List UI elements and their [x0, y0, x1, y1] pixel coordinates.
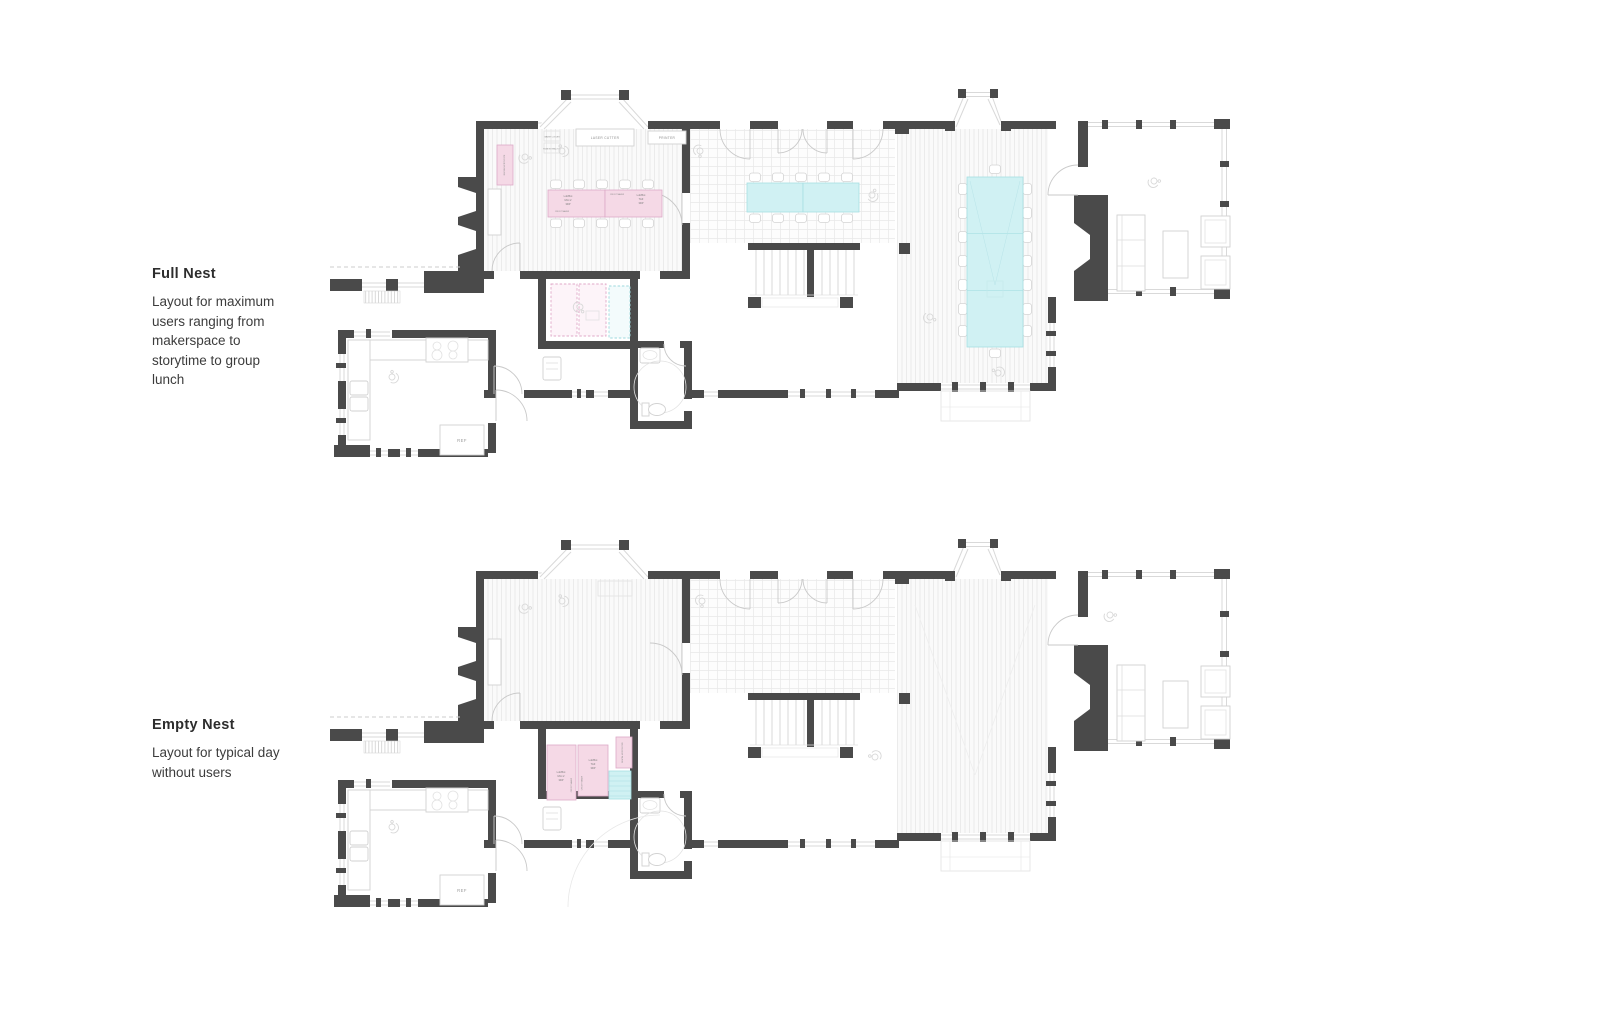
svg-text:3DP: 3DP — [590, 766, 595, 770]
svg-text:3DP: 3DP — [565, 202, 570, 206]
annotation-empty-nest: Empty Nest Layout for typical day withou… — [152, 717, 302, 782]
laser-cutter-label: LASER CUTTER — [591, 136, 620, 140]
digital-microscope-label: DIGITAL MICROSCOPE — [503, 154, 506, 175]
floor-plan-full-nest: WATER COOLER FUME EXTRACTOR LASER CUTTER… — [330, 85, 1235, 460]
cricut-maker-label: CRICUT MAKER — [570, 777, 573, 792]
plan-description-full-nest: Layout for maximum users ranging from ma… — [152, 292, 294, 390]
svg-text:CRICUT MAKER: CRICUT MAKER — [581, 775, 584, 790]
microscope-cabinet — [616, 737, 632, 768]
svg-text:Mini 2: Mini 2 — [558, 774, 565, 778]
lulzbot-mini-label: LulzBot — [564, 194, 573, 198]
plan-title-empty-nest: Empty Nest — [152, 717, 302, 733]
plan-title-full-nest: Full Nest — [152, 266, 302, 282]
svg-text:3DP: 3DP — [638, 201, 643, 205]
lulzbot-taz-label: LulzBot — [589, 758, 598, 762]
svg-text:3DP: 3DP — [558, 778, 563, 782]
svg-text:Mini 2: Mini 2 — [565, 198, 572, 202]
lulzbot-taz-label: LulzBot — [637, 193, 646, 197]
canvas: REF — [0, 0, 1600, 1035]
water-cooler-label: WATER COOLER — [544, 136, 560, 139]
svg-text:TAZ: TAZ — [591, 762, 596, 766]
fume-extractor-label: FUME EXTRACTOR — [543, 148, 561, 151]
group-lunch-table — [959, 165, 1032, 358]
svg-text:CRICUT MAKER: CRICUT MAKER — [610, 193, 625, 196]
storage-stored-equipment: LulzBot Mini 2 3DP LulzBot TAZ 3DP CRICU… — [547, 737, 632, 800]
plan-description-empty-nest: Layout for typical day without users — [152, 743, 294, 782]
annotation-full-nest: Full Nest Layout for maximum users rangi… — [152, 266, 302, 390]
floor-plan-empty-nest: LulzBot Mini 2 3DP LulzBot TAZ 3DP CRICU… — [330, 535, 1235, 910]
stored-folded-tables — [609, 771, 631, 799]
digital-microscope-label: DIGITAL MICROSCOPE — [621, 741, 624, 762]
cricut-maker-label: CRICUT MAKER — [555, 210, 570, 213]
storage-dashed-outlines — [551, 284, 630, 338]
printer-label: PRINTER — [659, 136, 676, 140]
lulzbot-mini-label: LulzBot — [557, 770, 566, 774]
svg-text:TAZ: TAZ — [639, 197, 644, 201]
